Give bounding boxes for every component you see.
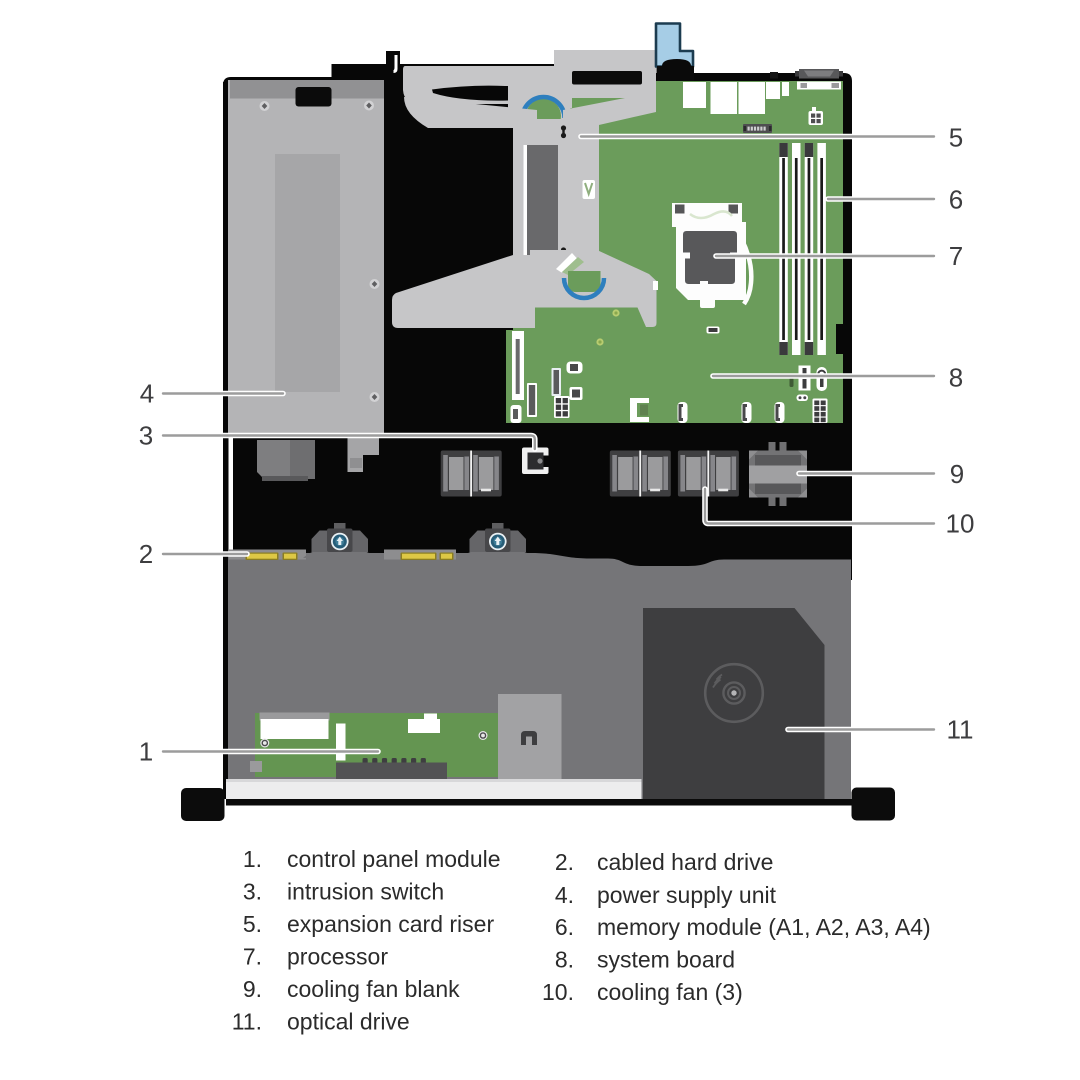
svg-text:7.: 7. — [243, 944, 262, 970]
svg-text:memory module (A1, A2, A3, A4): memory module (A1, A2, A3, A4) — [597, 914, 931, 940]
svg-text:7: 7 — [949, 241, 963, 271]
svg-text:8: 8 — [949, 363, 963, 393]
svg-text:10: 10 — [946, 509, 975, 539]
svg-text:optical drive: optical drive — [287, 1009, 410, 1035]
svg-text:control panel module: control panel module — [287, 846, 501, 872]
svg-text:6.: 6. — [555, 914, 574, 940]
svg-text:4.: 4. — [555, 882, 574, 908]
svg-text:9.: 9. — [243, 976, 262, 1002]
svg-text:cabled hard drive: cabled hard drive — [597, 849, 773, 875]
svg-text:3.: 3. — [243, 879, 262, 905]
svg-text:5: 5 — [949, 123, 963, 153]
svg-text:1: 1 — [139, 737, 153, 767]
svg-text:6: 6 — [949, 185, 963, 215]
svg-text:11.: 11. — [232, 1009, 262, 1035]
svg-text:8.: 8. — [555, 947, 574, 973]
svg-text:cooling fan blank: cooling fan blank — [287, 976, 460, 1002]
svg-text:11: 11 — [947, 715, 974, 745]
svg-text:processor: processor — [287, 944, 388, 970]
svg-text:3: 3 — [139, 421, 153, 451]
svg-text:expansion card riser: expansion card riser — [287, 911, 494, 937]
svg-text:cooling fan (3): cooling fan (3) — [597, 979, 743, 1005]
svg-text:10.: 10. — [542, 979, 574, 1005]
svg-text:system board: system board — [597, 947, 735, 973]
svg-text:5.: 5. — [243, 911, 262, 937]
svg-text:9: 9 — [950, 459, 964, 489]
svg-text:intrusion switch: intrusion switch — [287, 879, 444, 905]
svg-text:2.: 2. — [555, 849, 574, 875]
svg-text:4: 4 — [140, 379, 154, 409]
svg-text:power supply unit: power supply unit — [597, 882, 777, 908]
svg-text:1.: 1. — [243, 846, 262, 872]
svg-text:2: 2 — [139, 539, 153, 569]
